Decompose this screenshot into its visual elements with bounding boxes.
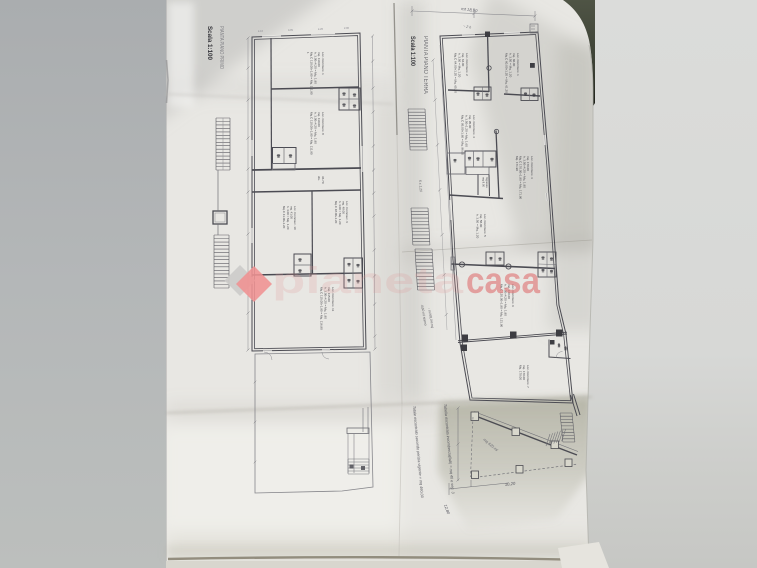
svg-text:5 x 1,20: 5 x 1,20 — [418, 180, 423, 192]
svg-text:Mq.C 41.00+1.20: Mq.C 41.00+1.20 — [282, 206, 286, 229]
svg-text:4.20: 4.20 — [318, 27, 324, 31]
svg-text:Mq.C 60.00+1.20 = Mq. 61.20: Mq.C 60.00+1.20 = Mq. 61.20 — [505, 53, 509, 93]
svg-text:Mq.C 48.00+1.20: Mq.C 48.00+1.20 — [334, 201, 338, 224]
svg-text:PIANTA PIANO PRIMO: PIANTA PIANO PRIMO — [218, 26, 224, 69]
svg-text:pianeta: pianeta — [272, 260, 464, 301]
svg-text:Mq.C 110.00+1.90 = Mq. 111.90: Mq.C 110.00+1.90 = Mq. 111.90 — [310, 112, 314, 155]
svg-text:dis.: dis. — [317, 176, 321, 181]
svg-text:h. 3.50 = Mq. 1.20: h. 3.50 = Mq. 1.20 — [475, 214, 479, 239]
svg-text:casa: casa — [466, 260, 540, 301]
svg-text:mq 9.00: mq 9.00 — [482, 177, 486, 188]
svg-text:Scala 1:100: Scala 1:100 — [206, 26, 213, 61]
svg-text:4.10: 4.10 — [258, 29, 264, 33]
svg-text:2.90: 2.90 — [344, 26, 350, 30]
svg-text:Scala 1:100: Scala 1:100 — [409, 36, 416, 66]
svg-text:Mq. 170.00: Mq. 170.00 — [518, 365, 522, 380]
svg-text:PIANTA PIANO TERRA: PIANTA PIANO TERRA — [422, 36, 428, 94]
svg-text:Mq. 171.90: Mq. 171.90 — [515, 156, 519, 171]
svg-text:3.95: 3.95 — [288, 28, 294, 32]
svg-text:Mq.C 64.00+1.20 = Mq. 65.20: Mq.C 64.00+1.20 = Mq. 65.20 — [454, 53, 458, 93]
svg-text:Mq.C 95.00+1.60 = Mq. 96.60: Mq.C 95.00+1.60 = Mq. 96.60 — [461, 115, 465, 155]
svg-text:Mq.C 110.00+1.90 = Mq. 111.90: Mq.C 110.00+1.90 = Mq. 111.90 — [310, 52, 314, 95]
